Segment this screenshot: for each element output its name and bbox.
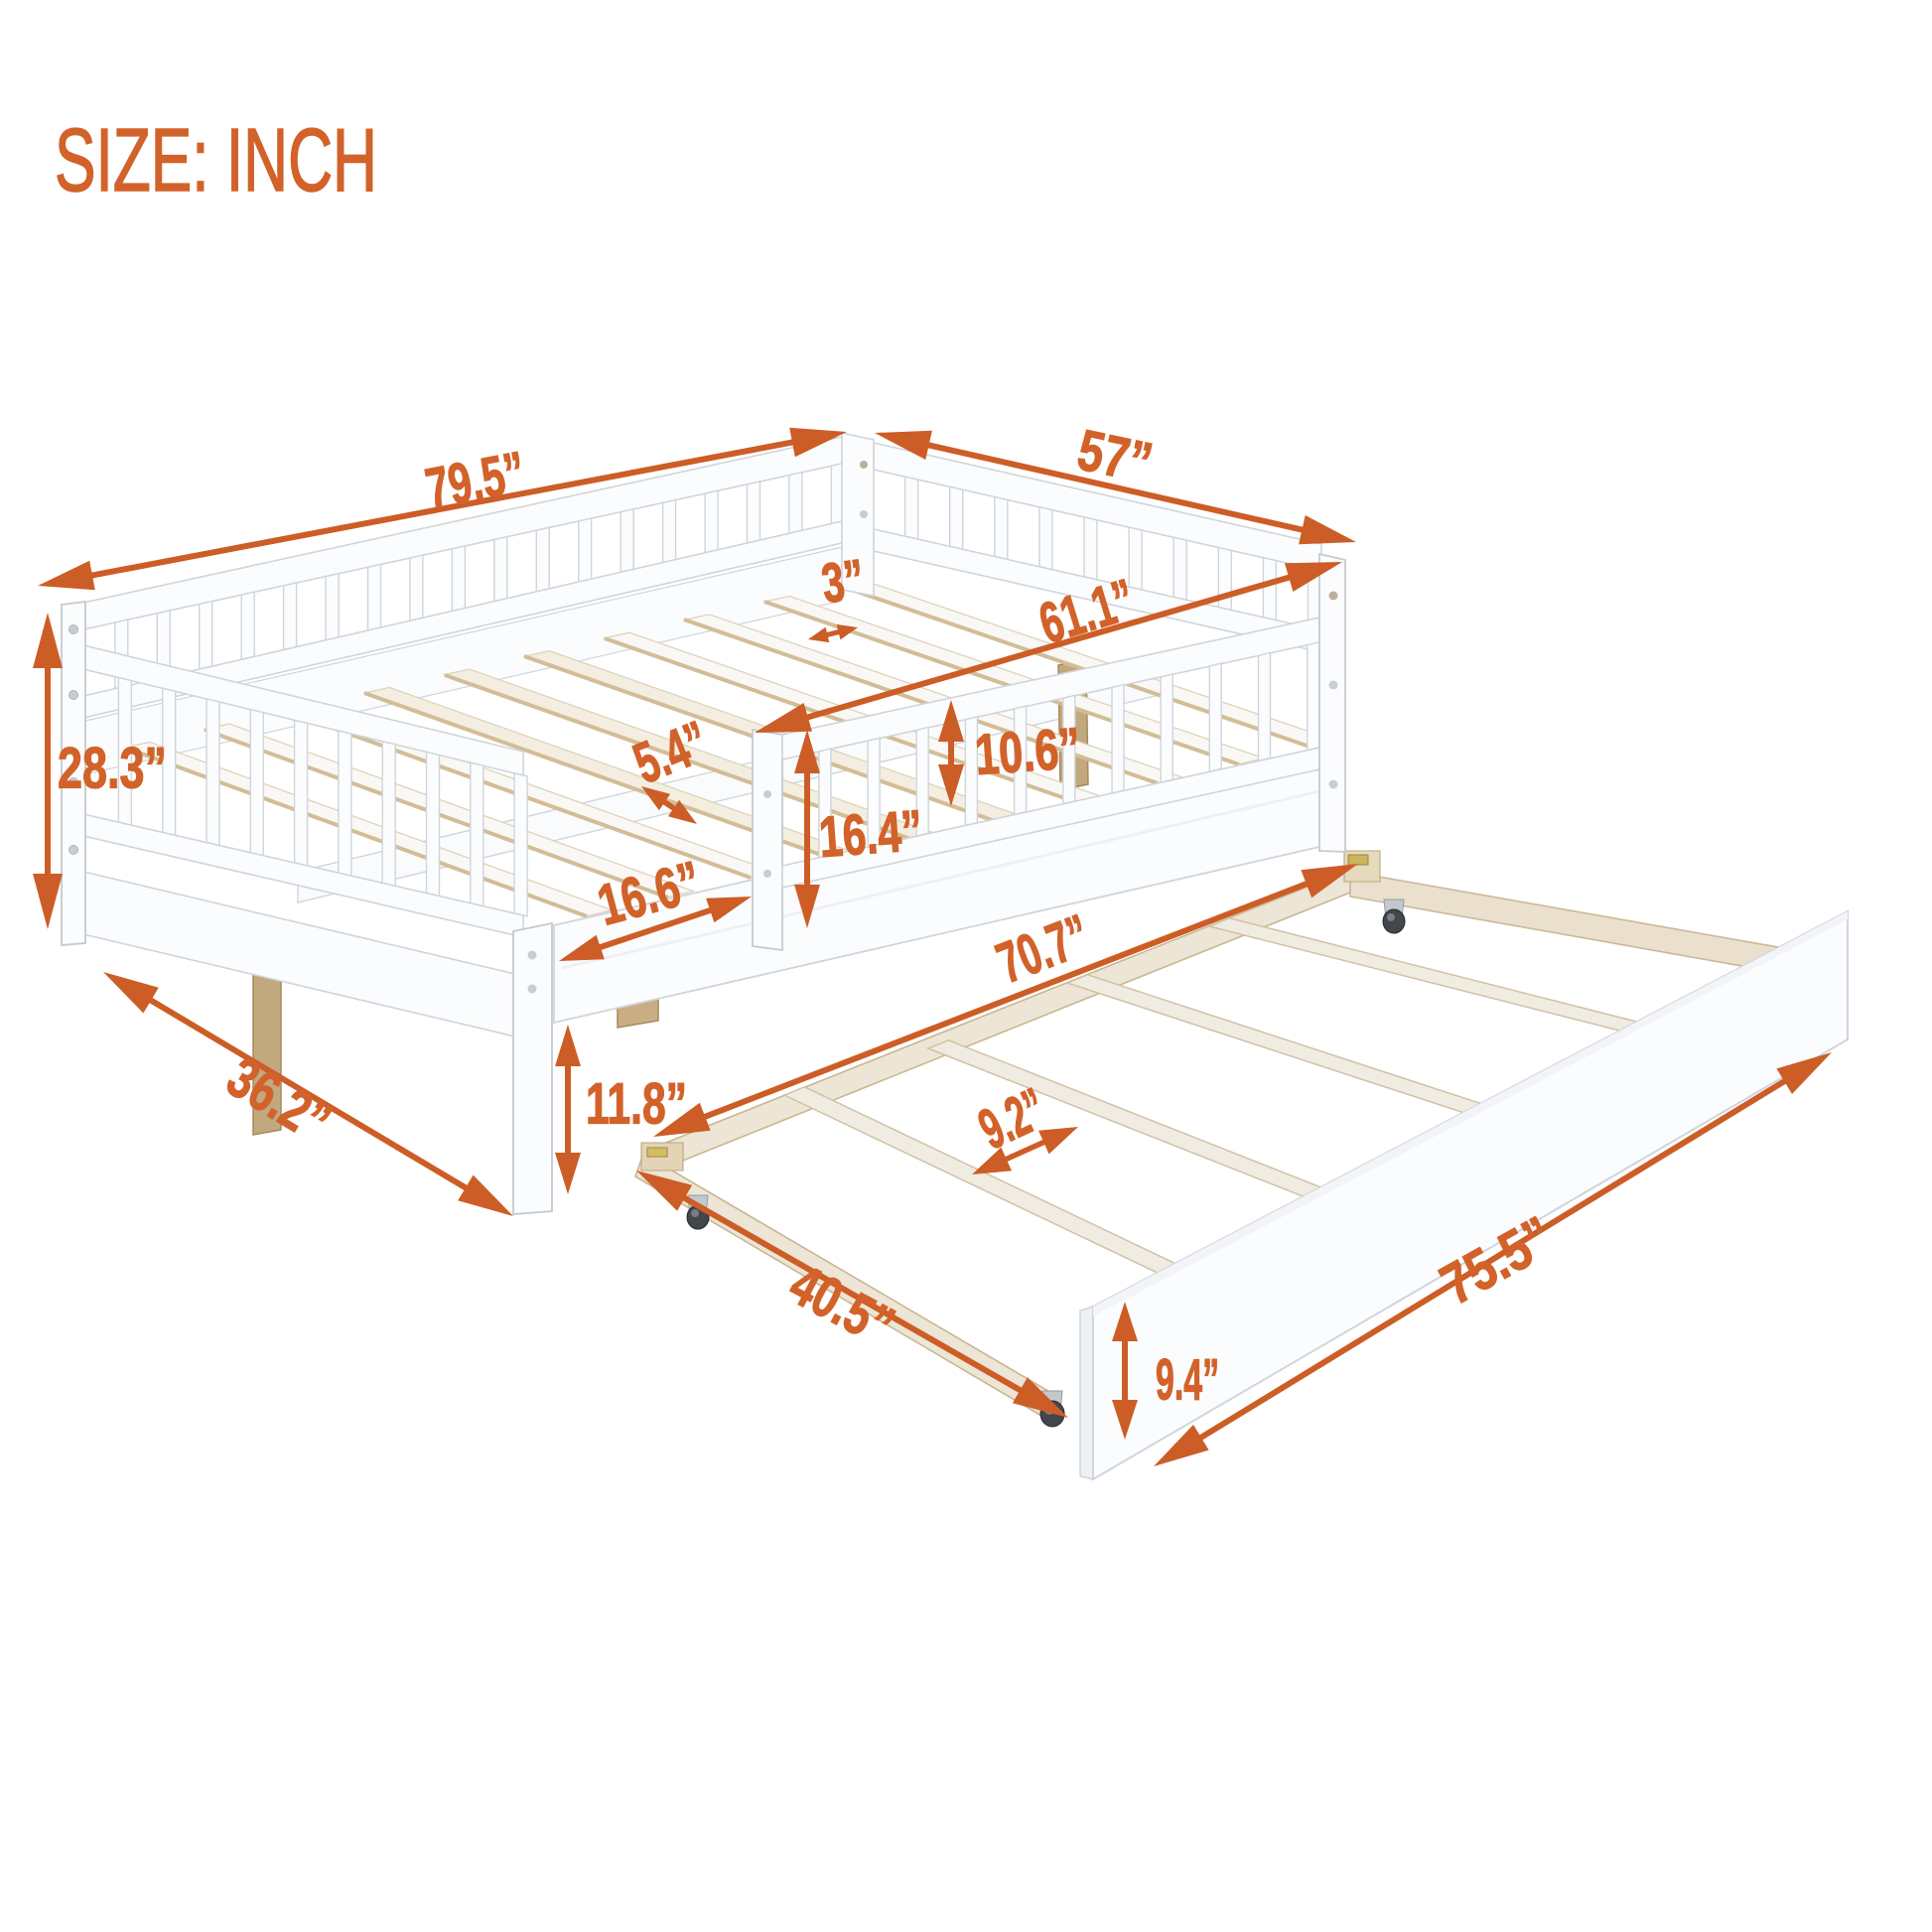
svg-text:16.4”: 16.4”: [817, 798, 924, 870]
svg-text:3”: 3”: [818, 547, 868, 615]
svg-text:10.6”: 10.6”: [973, 716, 1082, 787]
svg-text:28.3”: 28.3”: [58, 737, 167, 801]
svg-text:9.4”: 9.4”: [1156, 1348, 1219, 1413]
svg-text:SIZE: INCH: SIZE: INCH: [55, 111, 377, 210]
